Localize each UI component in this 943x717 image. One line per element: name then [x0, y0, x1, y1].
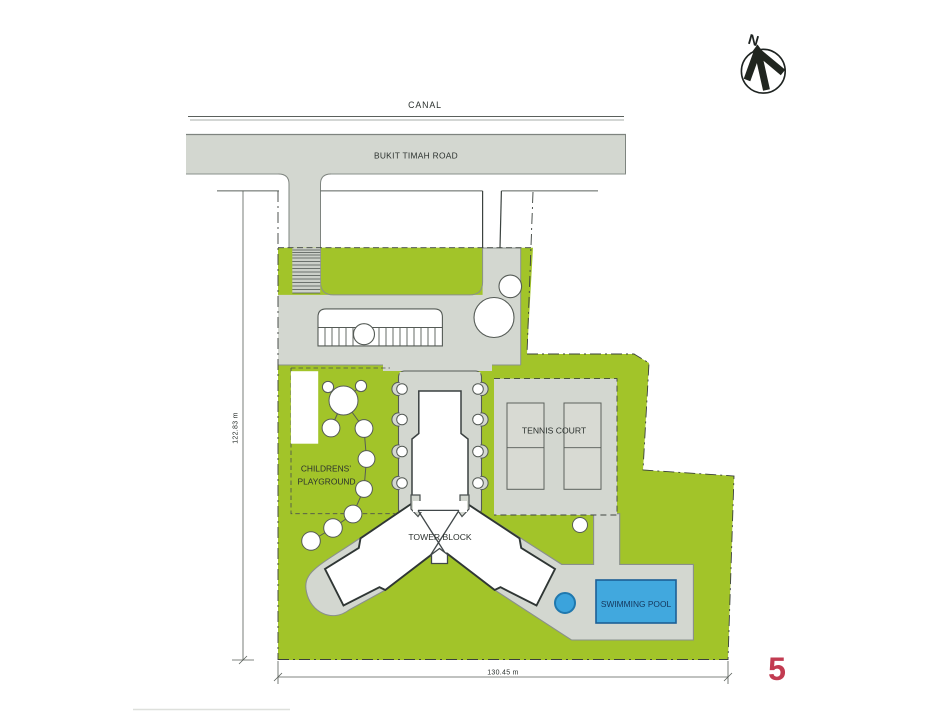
- svg-text:CHILDRENS’: CHILDRENS’: [301, 464, 351, 474]
- svg-text:TENNIS COURT: TENNIS COURT: [522, 426, 587, 436]
- svg-text:BUKIT TIMAH ROAD: BUKIT TIMAH ROAD: [374, 151, 458, 161]
- svg-text:122.83 m: 122.83 m: [233, 412, 240, 444]
- svg-text:5: 5: [768, 651, 786, 687]
- svg-text:CANAL: CANAL: [408, 100, 442, 110]
- svg-text:130.45 m: 130.45 m: [487, 670, 519, 677]
- svg-text:TOWER BLOCK: TOWER BLOCK: [408, 532, 472, 542]
- svg-text:PLAYGROUND: PLAYGROUND: [297, 477, 355, 487]
- svg-text:SWIMMING POOL: SWIMMING POOL: [601, 599, 672, 609]
